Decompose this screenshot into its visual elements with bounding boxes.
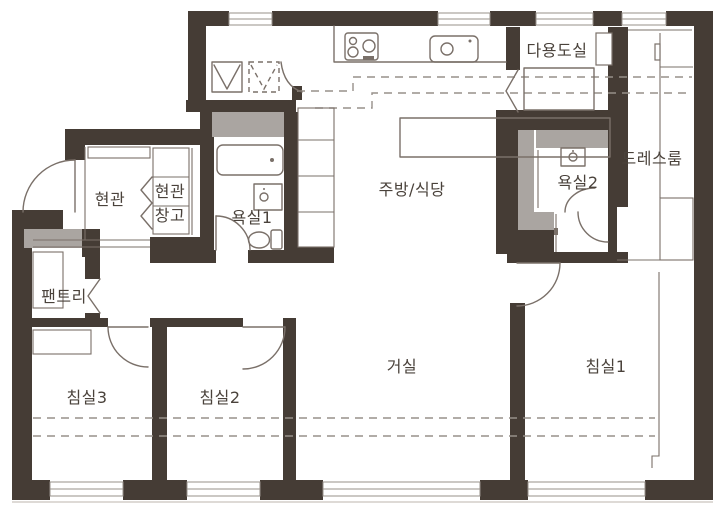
room-label-bedroom2: 침실2 bbox=[199, 388, 240, 407]
floorplan-svg: 현관 현관 창고 욕실1 주방/식당 다용도실 드레스룸 욕실2 팬트리 침실3… bbox=[0, 0, 724, 512]
kitchen-ceiling-dashed-line bbox=[297, 77, 692, 91]
tall-cabinet-column bbox=[298, 108, 334, 247]
room-label-living: 거실 bbox=[387, 357, 417, 376]
bedroom3-closet bbox=[33, 330, 91, 354]
folding-door-pantry bbox=[88, 279, 100, 313]
dressroom-closet bbox=[617, 33, 693, 260]
door-swing-bedroom2 bbox=[243, 327, 285, 369]
toilet-bath1 bbox=[249, 230, 283, 249]
utility-door-panel bbox=[596, 33, 612, 65]
room-label-bathroom1: 욕실1 bbox=[231, 208, 272, 227]
room-label-utility: 다용도실 bbox=[527, 41, 588, 60]
kitchen-ceiling-dashed-line-2 bbox=[315, 93, 692, 108]
bathtub bbox=[217, 145, 283, 175]
room-label-entrance-storage-1: 현관 bbox=[155, 182, 185, 201]
room-label-pantry: 팬트리 bbox=[41, 287, 87, 306]
washer-box bbox=[506, 68, 594, 112]
room-label-bedroom1: 침실1 bbox=[585, 357, 626, 376]
room-label-entrance: 현관 bbox=[95, 190, 125, 209]
floorplan-image: 현관 현관 창고 욕실1 주방/식당 다용도실 드레스룸 욕실2 팬트리 침실3… bbox=[0, 0, 724, 512]
room-label-kitchen-dining: 주방/식당 bbox=[379, 180, 446, 199]
washbasin-bath1 bbox=[254, 184, 282, 210]
shoe-cabinet bbox=[88, 147, 150, 158]
door-swing-bath2 bbox=[578, 212, 608, 242]
door-swing-bedroom3 bbox=[108, 327, 148, 367]
room-label-bedroom3: 침실3 bbox=[66, 388, 107, 407]
folding-door-storage bbox=[141, 177, 152, 229]
closet-handle bbox=[655, 44, 660, 60]
kitchen-sink bbox=[430, 36, 478, 62]
refrigerator-space bbox=[212, 62, 242, 92]
room-labels: 현관 현관 창고 욕실1 주방/식당 다용도실 드레스룸 욕실2 팬트리 침실3… bbox=[41, 41, 682, 407]
room-label-bathroom2: 욕실2 bbox=[557, 173, 598, 192]
door-swing-bedroom1 bbox=[517, 263, 560, 306]
kimchi-refrigerator-space-dashed bbox=[249, 62, 279, 92]
room-label-entrance-storage-2: 창고 bbox=[155, 206, 185, 225]
room-label-dressroom: 드레스룸 bbox=[622, 149, 683, 168]
walls bbox=[12, 11, 713, 500]
compartment-door-handle bbox=[554, 228, 558, 235]
kitchen-counter bbox=[334, 26, 506, 62]
cooktop bbox=[345, 33, 378, 60]
bedroom1-closet-line bbox=[652, 272, 659, 468]
entrance-door-swing bbox=[23, 160, 75, 212]
